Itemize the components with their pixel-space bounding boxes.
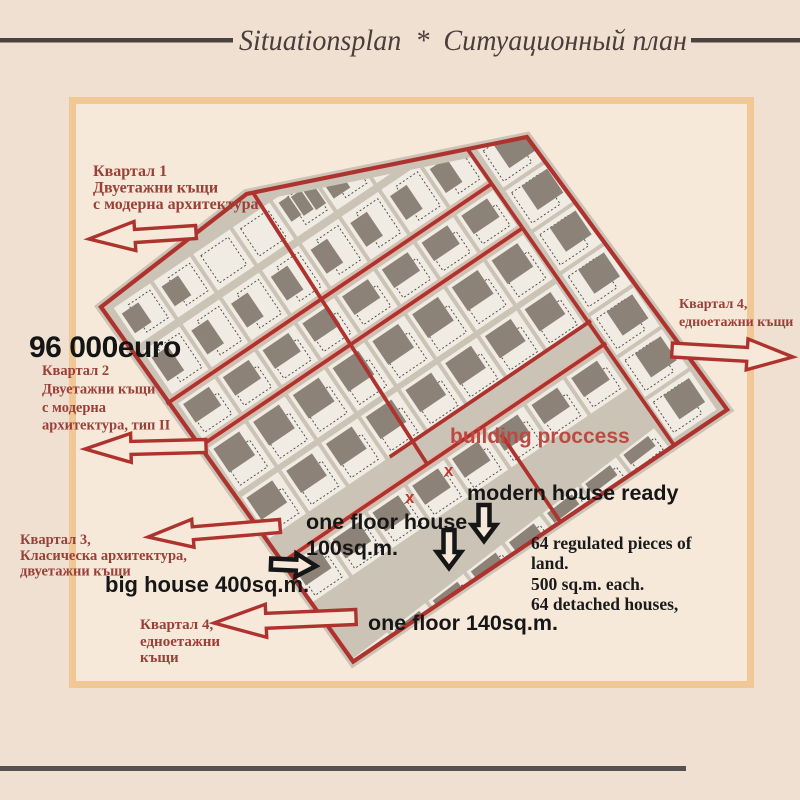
svg-text:one floor 140sq.m.: one floor 140sq.m. <box>368 611 558 635</box>
svg-text:с модерна архитектура: с модерна архитектура <box>93 196 258 213</box>
svg-text:къщи: къщи <box>140 650 179 666</box>
svg-text:modern house ready: modern house ready <box>467 481 679 505</box>
svg-text:64 regulated pieces of: 64 regulated pieces of <box>531 533 692 553</box>
svg-text:с модерна: с модерна <box>42 400 107 416</box>
svg-text:Situationsplan * Ситуационны: Situationsplan * Ситуационный план <box>239 24 687 57</box>
svg-text:Двуетажни къщи: Двуетажни къщи <box>42 382 155 398</box>
svg-text:Квартал 3,: Квартал 3, <box>20 532 91 548</box>
svg-text:building proccess: building proccess <box>450 425 630 448</box>
svg-text:Двуетажни къщи: Двуетажни къщи <box>93 180 218 197</box>
svg-text:Класическа архитектура,: Класическа архитектура, <box>20 548 187 564</box>
svg-text:Квартал 1: Квартал 1 <box>93 163 167 180</box>
svg-text:500 sq.m. each.: 500 sq.m. each. <box>531 574 644 594</box>
svg-text:едноетажни: едноетажни <box>140 634 220 650</box>
svg-text:land.: land. <box>531 553 568 573</box>
svg-text:архитектура, тип II: архитектура, тип II <box>42 418 171 434</box>
svg-text:Квартал 4,: Квартал 4, <box>679 297 747 312</box>
svg-text:x: x <box>405 488 415 507</box>
svg-text:96 000euro: 96 000euro <box>29 331 181 364</box>
svg-text:big house 400sq.m.: big house 400sq.m. <box>105 572 309 597</box>
svg-text:едноетажни къщи: едноетажни къщи <box>679 315 793 330</box>
svg-text:Квартал 2: Квартал 2 <box>42 363 109 379</box>
svg-text:100sq.m.: 100sq.m. <box>306 536 398 560</box>
svg-text:Квартал 4,: Квартал 4, <box>140 617 213 633</box>
svg-text:x: x <box>444 461 454 480</box>
svg-text:64 detached houses,: 64 detached houses, <box>531 594 678 614</box>
svg-text:one floor house: one floor house <box>306 510 467 534</box>
